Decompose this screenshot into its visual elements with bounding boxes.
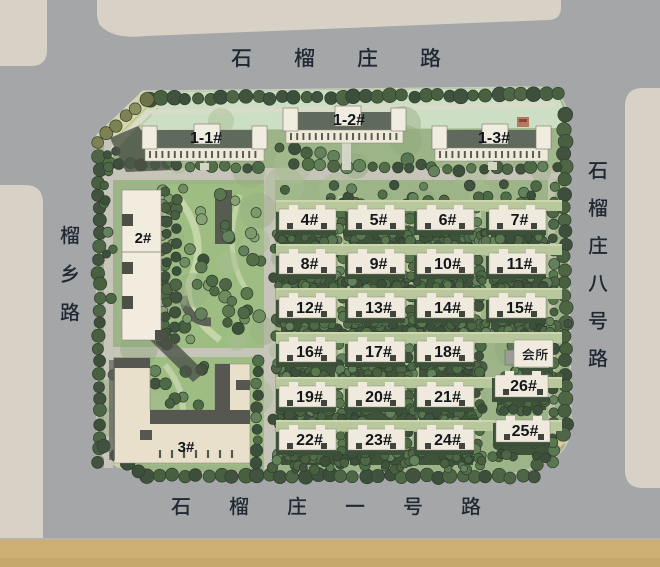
- svg-text:6#: 6#: [439, 212, 457, 229]
- svg-text:24#: 24#: [434, 432, 461, 449]
- svg-text:22#: 22#: [296, 432, 323, 449]
- svg-text:1-2#: 1-2#: [333, 112, 365, 129]
- svg-text:11#: 11#: [507, 256, 533, 273]
- svg-text:19#: 19#: [296, 389, 323, 406]
- svg-text:9#: 9#: [370, 256, 388, 273]
- svg-text:18#: 18#: [434, 344, 461, 361]
- svg-text:5#: 5#: [370, 212, 388, 229]
- svg-text:8#: 8#: [301, 256, 319, 273]
- svg-text:1-3#: 1-3#: [478, 130, 510, 147]
- svg-text:13#: 13#: [365, 300, 392, 317]
- svg-text:10#: 10#: [434, 256, 461, 273]
- svg-text:15#: 15#: [506, 300, 533, 317]
- svg-text:4#: 4#: [301, 212, 319, 229]
- svg-text:7#: 7#: [511, 212, 529, 229]
- svg-text:14#: 14#: [434, 300, 461, 317]
- svg-text:17#: 17#: [365, 344, 392, 361]
- svg-text:23#: 23#: [365, 432, 392, 449]
- svg-text:26#: 26#: [510, 378, 537, 395]
- svg-text:2#: 2#: [135, 230, 152, 247]
- svg-text:1-1#: 1-1#: [190, 130, 222, 147]
- svg-text:20#: 20#: [365, 389, 392, 406]
- svg-text:16#: 16#: [296, 344, 323, 361]
- svg-text:21#: 21#: [434, 389, 461, 406]
- svg-text:25#: 25#: [512, 423, 539, 440]
- svg-text:12#: 12#: [296, 300, 323, 317]
- svg-text:3#: 3#: [178, 439, 195, 456]
